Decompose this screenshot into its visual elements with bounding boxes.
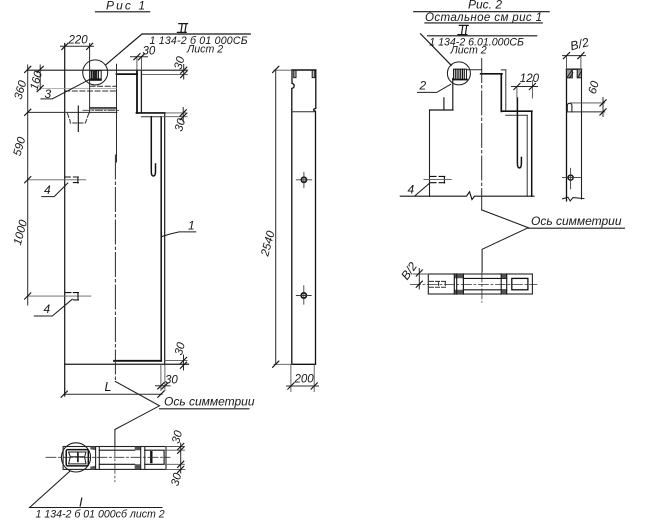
svg-text:30: 30 [173,341,188,357]
svg-text:Остальное см рис 1: Остальное см рис 1 [425,11,542,24]
svg-text:L: L [105,380,112,394]
svg-text:1: 1 [188,219,195,233]
svg-text:2: 2 [419,79,427,93]
svg-text:Рис. 2: Рис. 2 [468,0,502,12]
svg-text:590: 590 [12,135,29,157]
svg-text:4: 4 [44,183,51,197]
svg-text:I: I [79,495,83,510]
svg-text:4: 4 [44,302,51,316]
svg-text:4: 4 [408,183,415,197]
svg-text:30: 30 [170,429,185,445]
svg-text:60: 60 [587,79,602,95]
svg-text:220: 220 [68,35,89,47]
svg-text:В/2: В/2 [398,259,420,282]
svg-text:В/2: В/2 [569,35,591,53]
svg-text:360: 360 [13,79,30,101]
svg-text:200: 200 [294,374,315,386]
svg-text:Лист 2: Лист 2 [186,44,223,56]
svg-text:Ось симметрии: Ось симметрии [164,395,255,409]
svg-text:Лист 2: Лист 2 [450,45,487,57]
svg-text:1 134-2 б 01 000сб лист 2: 1 134-2 б 01 000сб лист 2 [36,509,165,521]
svg-text:30: 30 [143,46,156,58]
svg-text:30: 30 [165,375,178,387]
svg-text:Ось симметрии: Ось симметрии [531,214,622,228]
svg-text:120: 120 [520,73,540,85]
svg-text:2540: 2540 [259,229,278,258]
svg-text:30: 30 [169,471,184,487]
svg-text:Рис 1: Рис 1 [106,0,147,13]
